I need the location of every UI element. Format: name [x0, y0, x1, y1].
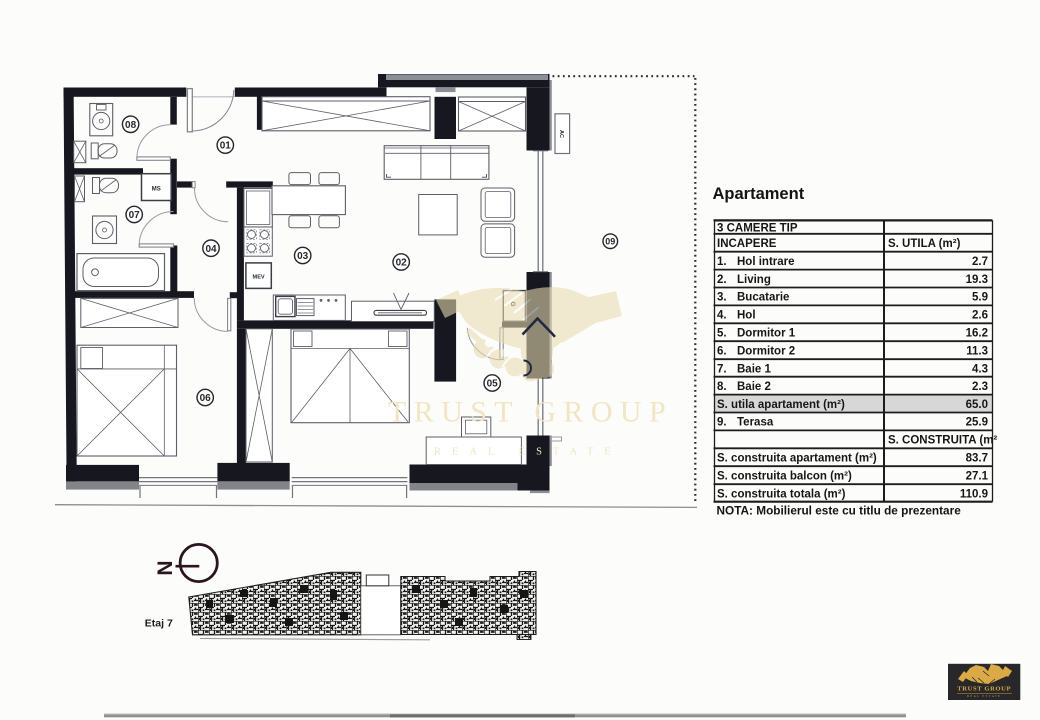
svg-text:3.: 3. [717, 292, 727, 304]
svg-text:Hol intrare: Hol intrare [737, 256, 795, 268]
svg-text:Hol: Hol [737, 310, 756, 322]
svg-text:NOTA: Mobilierul este cu titlu: NOTA: Mobilierul este cu titlu de prezen… [717, 504, 962, 518]
svg-text:4.3: 4.3 [972, 363, 988, 375]
svg-text:2.: 2. [717, 274, 727, 286]
svg-text:9.: 9. [717, 417, 727, 429]
svg-text:08: 08 [125, 120, 137, 131]
svg-text:3 CAMERE TIP: 3 CAMERE TIP [717, 222, 798, 234]
svg-text:REAL ESTATE: REAL ESTATE [967, 694, 1001, 698]
svg-text:09: 09 [605, 236, 615, 246]
svg-text:S. UTILA (m²): S. UTILA (m²) [888, 238, 961, 250]
svg-text:05: 05 [487, 379, 499, 390]
svg-text:S. CONSTRUITA (m²: S. CONSTRUITA (m² [888, 435, 997, 447]
svg-text:65.0: 65.0 [966, 399, 988, 411]
svg-text:4.: 4. [717, 310, 727, 322]
svg-text:6.: 6. [717, 345, 727, 357]
svg-text:TRUST GROUP: TRUST GROUP [388, 396, 673, 429]
svg-text:19.3: 19.3 [966, 274, 988, 286]
svg-text:Baie 2: Baie 2 [737, 381, 771, 393]
svg-text:2.3: 2.3 [972, 381, 988, 393]
svg-text:11.3: 11.3 [966, 345, 988, 357]
svg-text:7.: 7. [717, 363, 727, 375]
svg-text:REAL ESTATE: REAL ESTATE [434, 447, 622, 458]
svg-text:INCAPERE: INCAPERE [717, 238, 777, 250]
svg-text:Baie 1: Baie 1 [737, 363, 771, 375]
svg-text:S. utila apartament (m²): S. utila apartament (m²) [717, 399, 845, 411]
svg-text:S. construita totala (m²): S. construita totala (m²) [717, 488, 846, 500]
svg-text:07: 07 [129, 210, 141, 221]
svg-text:Etaj 7: Etaj 7 [145, 618, 173, 630]
svg-text:MEV: MEV [253, 275, 265, 281]
svg-text:5.9: 5.9 [972, 292, 988, 304]
svg-text:TRUST GROUP: TRUST GROUP [957, 686, 1011, 693]
svg-text:02: 02 [396, 258, 408, 269]
svg-text:S. construita apartament (m²): S. construita apartament (m²) [717, 453, 877, 465]
svg-text:06: 06 [200, 393, 212, 404]
svg-text:2.6: 2.6 [972, 310, 988, 322]
svg-text:25.9: 25.9 [966, 417, 988, 429]
svg-text:Terasa: Terasa [737, 417, 774, 429]
svg-text:Dormitor 1: Dormitor 1 [737, 328, 796, 340]
svg-text:AC: AC [558, 130, 564, 138]
svg-text:MS: MS [152, 187, 161, 193]
svg-text:16.2: 16.2 [966, 328, 988, 340]
svg-text:8.: 8. [717, 381, 727, 393]
svg-text:83.7: 83.7 [966, 453, 988, 465]
svg-text:03: 03 [297, 251, 309, 262]
svg-text:Bucatarie: Bucatarie [737, 292, 789, 304]
svg-text:Living: Living [737, 274, 771, 286]
svg-text:04: 04 [205, 244, 217, 255]
svg-text:2.7: 2.7 [972, 256, 988, 268]
svg-text:5.: 5. [717, 328, 727, 340]
svg-text:Apartament: Apartament [713, 185, 805, 203]
svg-text:1.: 1. [717, 256, 727, 268]
svg-text:01: 01 [220, 141, 232, 152]
svg-text:110.9: 110.9 [960, 488, 988, 500]
svg-text:S. construita balcon (m²): S. construita balcon (m²) [717, 470, 852, 482]
svg-text:N: N [154, 560, 177, 575]
svg-text:27.1: 27.1 [966, 470, 989, 482]
svg-text:Dormitor 2: Dormitor 2 [737, 345, 795, 357]
